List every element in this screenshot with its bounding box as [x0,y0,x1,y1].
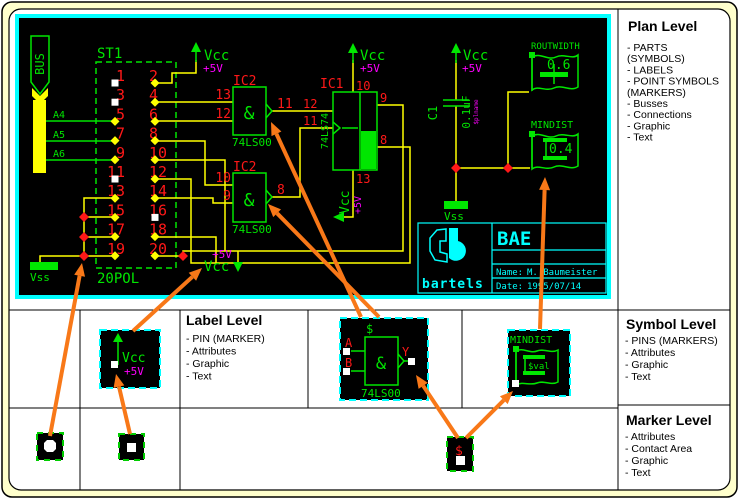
marker-panel-attribute: $ [447,437,473,471]
rail-label: +5V [462,62,482,75]
rail-label: +5V [353,196,364,214]
level-list-item: - Text [625,371,651,383]
dist-glyph-top [523,355,545,359]
mindist-symbol-panel: MINDIST $val [508,330,570,396]
gate-designator: IC2 [233,160,256,175]
vss-label: Vss [444,210,464,223]
gate-pin: 13 [215,88,231,103]
gnd-bar-icon [30,262,58,270]
ic-pin: 11 [303,114,317,128]
flag-value: 0.6 [547,58,570,73]
ic-pin: 9 [380,91,387,105]
name-label: Name: [496,268,523,278]
gate-pin: 9 [223,189,231,204]
level-list-item: - Busses [627,98,668,110]
level-list-item: - Graphic [625,359,668,371]
vcc-label-panel: Vcc +5V [100,330,160,388]
pin-name: B [345,356,352,370]
bus-tap-label: A6 [53,149,65,160]
rail-label: +5V [212,248,232,261]
manual-illustration: BUS A4 A5 A6 ST1 20POL 13579111315171924… [0,0,739,499]
pin-name: Y [402,345,410,359]
contact-area-square [456,456,465,465]
level-list-item: - LABELS [627,64,673,76]
gate-part: 74LS00 [232,136,272,149]
level-list-item: - Text [627,132,653,144]
rail-label: +5V [124,365,144,378]
pin-marker [408,358,415,365]
flag-name: MINDIST [531,120,573,131]
level-list-item: - Text [186,371,212,383]
ic-pin: 10 [356,79,370,93]
pin-marker [512,380,519,387]
connector-designator: ST1 [97,46,122,62]
rail-label: +5V [360,62,380,75]
marker-panel-square [119,434,144,460]
pin-name: A [345,336,353,350]
level-list-item: (SYMBOLS) [627,53,685,65]
gate-part: 74LS00 [232,223,272,236]
contact-area-square [127,443,136,452]
level-list-item: - Text [625,467,651,479]
level-list-item: - Graphic [625,455,668,467]
ic-pin: 12 [303,97,317,111]
level-list-item: - Connections [627,109,692,121]
connector-package: 20POL [97,271,139,287]
bus-label: BUS [33,53,47,75]
contact-area-octagon [44,440,56,452]
vcc-label: Vcc [122,351,145,366]
name-value: M. Baumeister [527,268,598,278]
level-title: Label Level [186,312,262,328]
flag-value: $val [528,362,550,372]
vcc-label: Vcc [204,259,229,275]
gate-body: & [244,103,255,124]
level-list-item: - Attributes [186,346,236,358]
level-title: Symbol Level [626,316,716,332]
bus-tap-label: A5 [53,130,65,141]
gate-pin: 8 [277,183,285,198]
flag-name: MINDIST [510,335,552,346]
designator-placeholder: $ [366,322,373,336]
level-list-item: (MARKERS) [627,87,686,99]
marker-panel-octagon [37,433,63,460]
ic-designator: IC1 [320,77,343,92]
cap-designator: C1 [426,106,440,120]
vss-label: Vss [30,271,50,284]
ic-pin: 8 [380,133,387,147]
date-label: Date: [496,282,523,292]
level-list-item: - Contact Area [625,443,692,455]
level-list-item: - Attributes [625,347,675,359]
level-title: Plan Level [628,18,697,34]
hierarchy-diagram: BUS A4 A5 A6 ST1 20POL 13579111315171924… [0,0,739,499]
flag-name: ROUTWIDTH [531,42,580,52]
gate-designator: IC2 [233,74,256,89]
rail-label: +5V [203,62,223,75]
level-list-item: - Graphic [186,358,229,370]
cap-attribute: $plname [473,99,480,125]
brand-wordmark: bartels [422,277,484,292]
level-list-item: - PIN (MARKER) [186,333,265,345]
cap-value: 0.1uF [460,95,473,128]
ic-part: 74LS74 [320,113,331,149]
level-list-item: - Attributes [625,431,675,443]
bus-bar [33,100,46,173]
level-list-item: - Graphic [627,120,670,132]
ic1-fill-block [361,131,376,169]
level-list-item: - PINS (MARKERS) [625,335,718,347]
gate-part: 74LS00 [361,387,401,400]
gate-body: & [244,190,255,211]
date-value: 1995/07/14 [527,282,581,292]
gate-body: & [376,354,387,374]
pin-marker [111,361,118,368]
gate-pin: 11 [277,97,293,112]
gnd-bar-icon [444,201,468,209]
level-list-item: - PARTS [627,42,667,54]
bus-tap-label: A4 [53,110,65,121]
level-list-item: - POINT SYMBOLS [627,76,719,88]
gate-pin: 10 [215,171,231,186]
flag-value: 0.4 [549,142,573,157]
level-title: Marker Level [626,412,712,428]
ic-pin: 13 [356,172,370,186]
gate-pin: 12 [215,107,231,122]
gate-symbol-panel: $ A B Y & 74LS00 [340,318,428,400]
product-name: BAE [497,228,531,250]
vcc-label: Vcc [338,191,353,214]
